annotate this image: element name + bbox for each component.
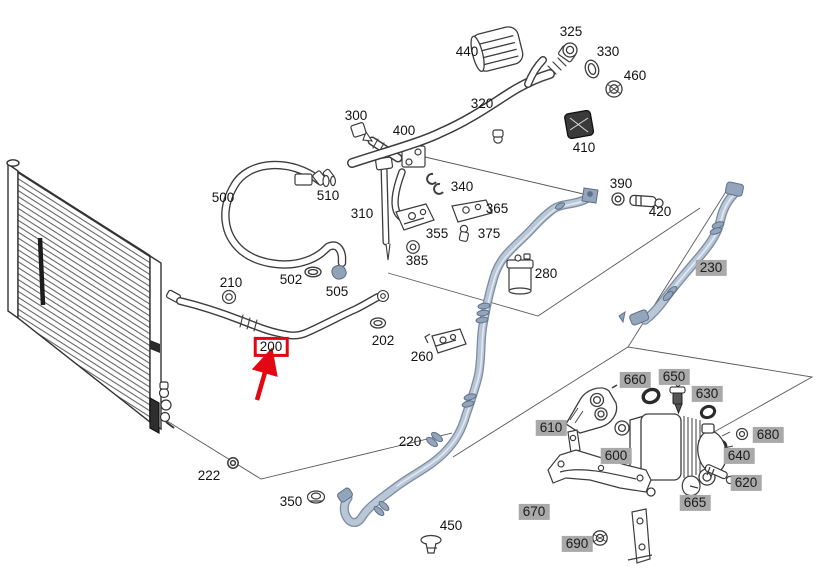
callout-630[interactable]: 630 xyxy=(692,386,723,402)
callout-310[interactable]: 310 xyxy=(351,207,374,221)
callout-420[interactable]: 420 xyxy=(649,205,672,219)
callout-385[interactable]: 385 xyxy=(406,254,429,268)
callout-320[interactable]: 320 xyxy=(471,97,494,111)
parts-diagram-canvas: 3004004403253304603204103904205005103103… xyxy=(0,0,824,568)
callout-665[interactable]: 665 xyxy=(680,495,711,511)
callout-200[interactable]: 200 xyxy=(254,337,289,357)
callout-670[interactable]: 670 xyxy=(519,504,550,520)
callout-450[interactable]: 450 xyxy=(440,519,463,533)
callout-330[interactable]: 330 xyxy=(597,45,620,59)
callout-400[interactable]: 400 xyxy=(393,124,416,138)
callout-210[interactable]: 210 xyxy=(220,276,243,290)
callout-222[interactable]: 222 xyxy=(198,469,221,483)
callout-280[interactable]: 280 xyxy=(535,267,558,281)
callout-350[interactable]: 350 xyxy=(280,495,303,509)
callout-650[interactable]: 650 xyxy=(659,369,690,385)
callout-355[interactable]: 355 xyxy=(426,227,449,241)
callout-325[interactable]: 325 xyxy=(560,25,583,39)
callout-600[interactable]: 600 xyxy=(601,448,632,464)
callout-440[interactable]: 440 xyxy=(456,45,479,59)
callout-230[interactable]: 230 xyxy=(696,260,727,276)
callout-680[interactable]: 680 xyxy=(753,427,784,443)
callout-640[interactable]: 640 xyxy=(724,448,755,464)
callout-375[interactable]: 375 xyxy=(478,227,501,241)
callout-layer: 3004004403253304603204103904205005103103… xyxy=(0,0,824,568)
callout-365[interactable]: 365 xyxy=(486,202,509,216)
callout-202[interactable]: 202 xyxy=(372,334,395,348)
callout-690[interactable]: 690 xyxy=(562,536,593,552)
callout-610[interactable]: 610 xyxy=(536,420,567,436)
callout-260[interactable]: 260 xyxy=(411,350,434,364)
callout-410[interactable]: 410 xyxy=(573,141,596,155)
callout-660[interactable]: 660 xyxy=(620,372,651,388)
callout-340[interactable]: 340 xyxy=(451,180,474,194)
callout-300[interactable]: 300 xyxy=(345,109,368,123)
callout-620[interactable]: 620 xyxy=(731,475,762,491)
callout-390[interactable]: 390 xyxy=(610,177,633,191)
callout-510[interactable]: 510 xyxy=(317,189,340,203)
callout-505[interactable]: 505 xyxy=(326,285,349,299)
callout-460[interactable]: 460 xyxy=(624,69,647,83)
callout-500[interactable]: 500 xyxy=(212,191,235,205)
callout-502[interactable]: 502 xyxy=(280,273,303,287)
callout-220[interactable]: 220 xyxy=(399,435,422,449)
